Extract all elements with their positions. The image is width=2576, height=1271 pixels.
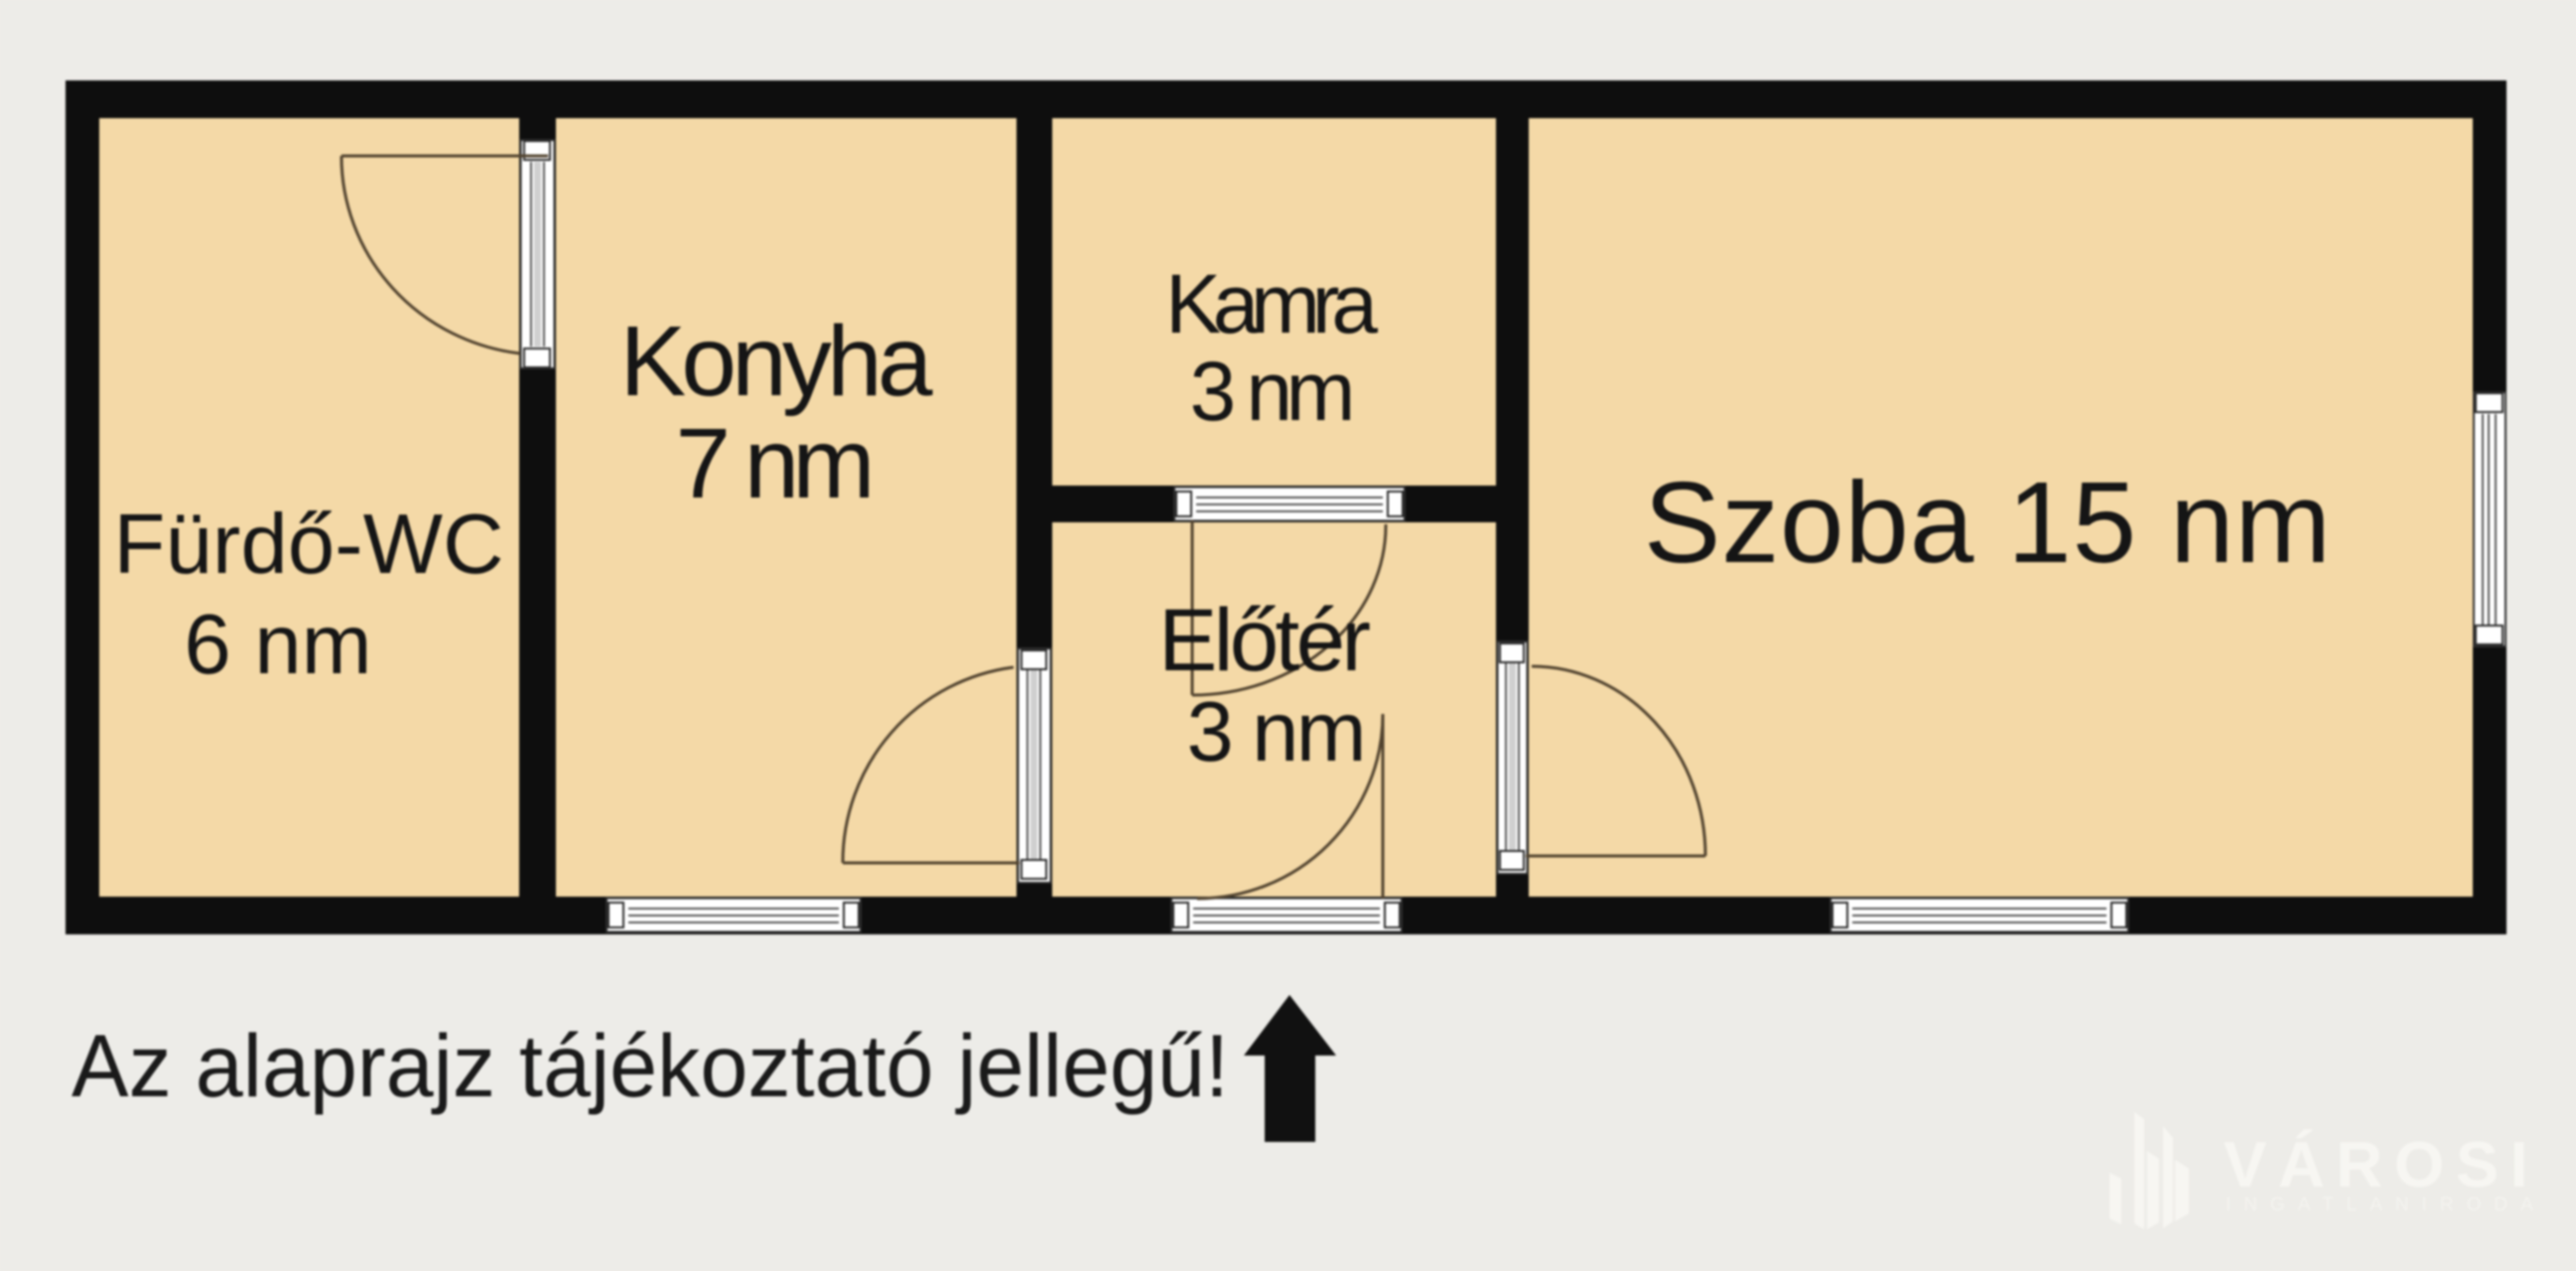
svg-text:3 nm: 3 nm bbox=[1187, 685, 1367, 779]
svg-text:Kamra: Kamra bbox=[1165, 257, 1378, 351]
svg-text:VÁROSI: VÁROSI bbox=[2224, 1128, 2539, 1200]
svg-text:6 nm: 6 nm bbox=[185, 598, 372, 692]
svg-text:3 nm: 3 nm bbox=[1190, 345, 1356, 438]
svg-text:INGATLANIRODA: INGATLANIRODA bbox=[2226, 1195, 2546, 1215]
svg-text:Szoba 15 nm: Szoba 15 nm bbox=[1644, 458, 2331, 587]
svg-text:7 nm: 7 nm bbox=[676, 408, 876, 519]
svg-text:Fürdő-WC: Fürdő-WC bbox=[114, 497, 504, 592]
svg-text:Az alaprajz tájékoztató jelleg: Az alaprajz tájékoztató jellegű! bbox=[71, 1016, 1229, 1115]
svg-text:Előtér: Előtér bbox=[1158, 590, 1371, 689]
svg-text:Konyha: Konyha bbox=[620, 306, 933, 417]
